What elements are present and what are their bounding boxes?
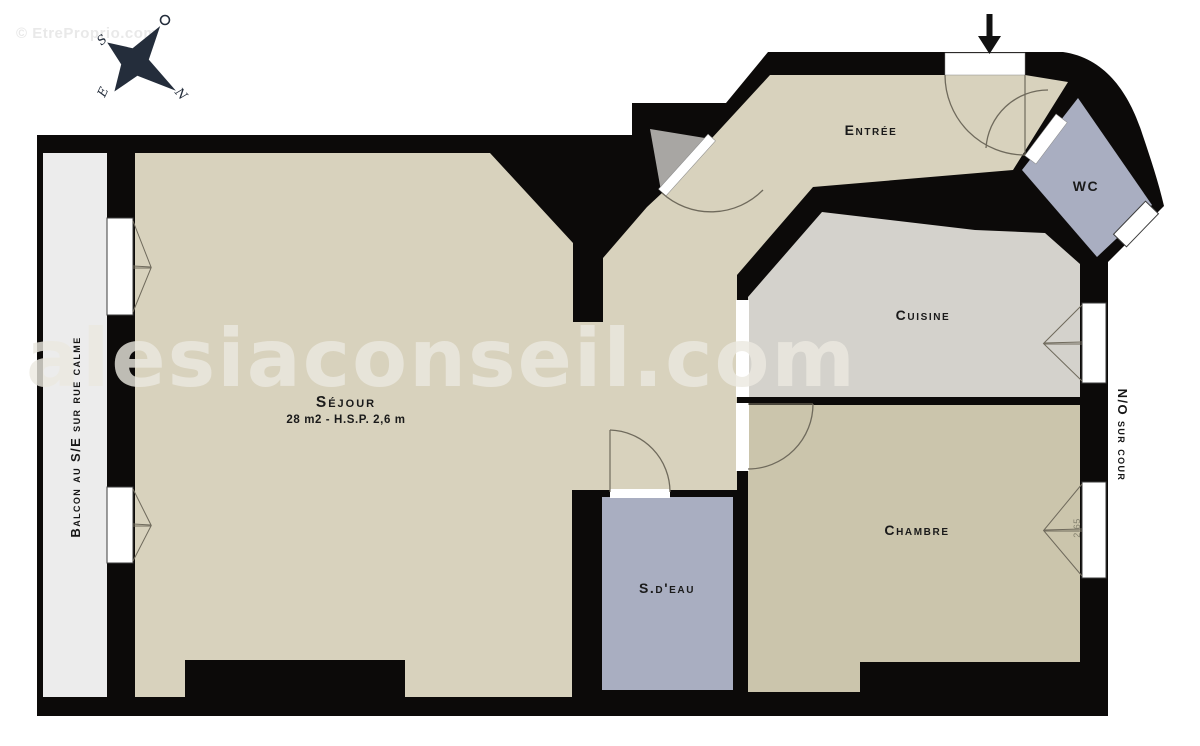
chambre-label: Chambre [884,522,949,538]
sejour-details: 28 m2 - H.S.P. 2,6 m [286,414,405,426]
chambre-floor [748,405,1080,692]
courtyard-annotation: N/O sur cour [1115,389,1130,482]
sejour-label: Séjour [316,394,376,411]
entrance-door-opening [945,53,1025,75]
center-watermark: alesiaconseil.com [26,312,857,405]
compass-west-circle [161,16,170,25]
floor-plan: © EtreProprio.com 2,65 [0,0,1200,746]
corner-watermark: © EtreProprio.com [16,25,157,42]
sdeau-label: S.d'eau [639,580,695,596]
chambre-door-opening [736,403,749,471]
window-dimension: 2,65 [1072,518,1082,538]
balcony-annotation: Balcon au S/E sur rue calme [68,336,83,537]
compass-east: E [93,84,111,100]
sdeau-door-opening [610,489,670,498]
entree-label: Entrée [845,122,898,138]
wc-label: WC [1073,178,1100,194]
entrance-arrow-icon [978,14,1001,54]
floor-plan-page: © EtreProprio.com 2,65 [0,0,1200,746]
cuisine-label: Cuisine [896,307,951,323]
compass-north: N [171,84,191,104]
